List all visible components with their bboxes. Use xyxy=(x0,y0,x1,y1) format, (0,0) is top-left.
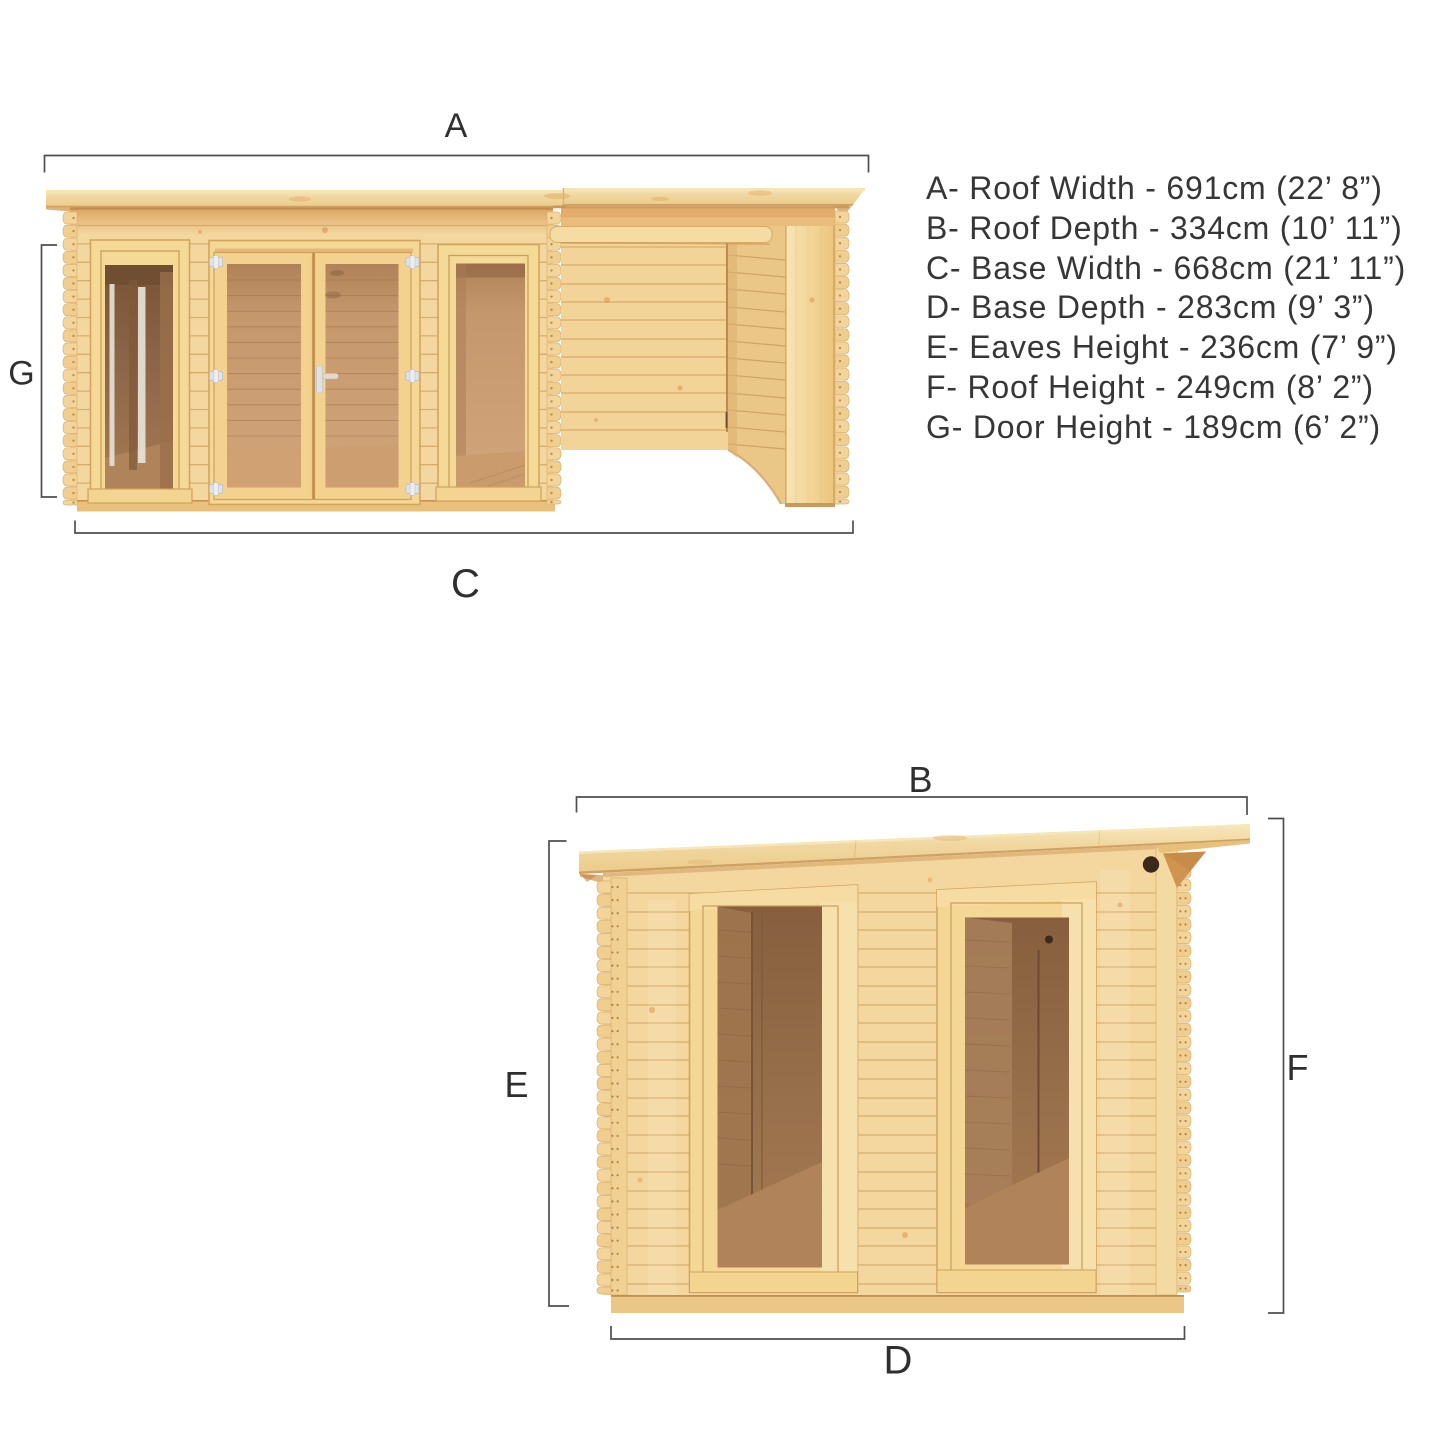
svg-text:F: F xyxy=(1287,1047,1309,1088)
svg-text:B: B xyxy=(908,759,932,800)
svg-text:D: D xyxy=(884,1339,913,1383)
svg-text:G: G xyxy=(8,355,34,393)
svg-text:E: E xyxy=(504,1064,528,1105)
svg-text:C: C xyxy=(451,562,480,606)
svg-text:A: A xyxy=(445,107,468,145)
